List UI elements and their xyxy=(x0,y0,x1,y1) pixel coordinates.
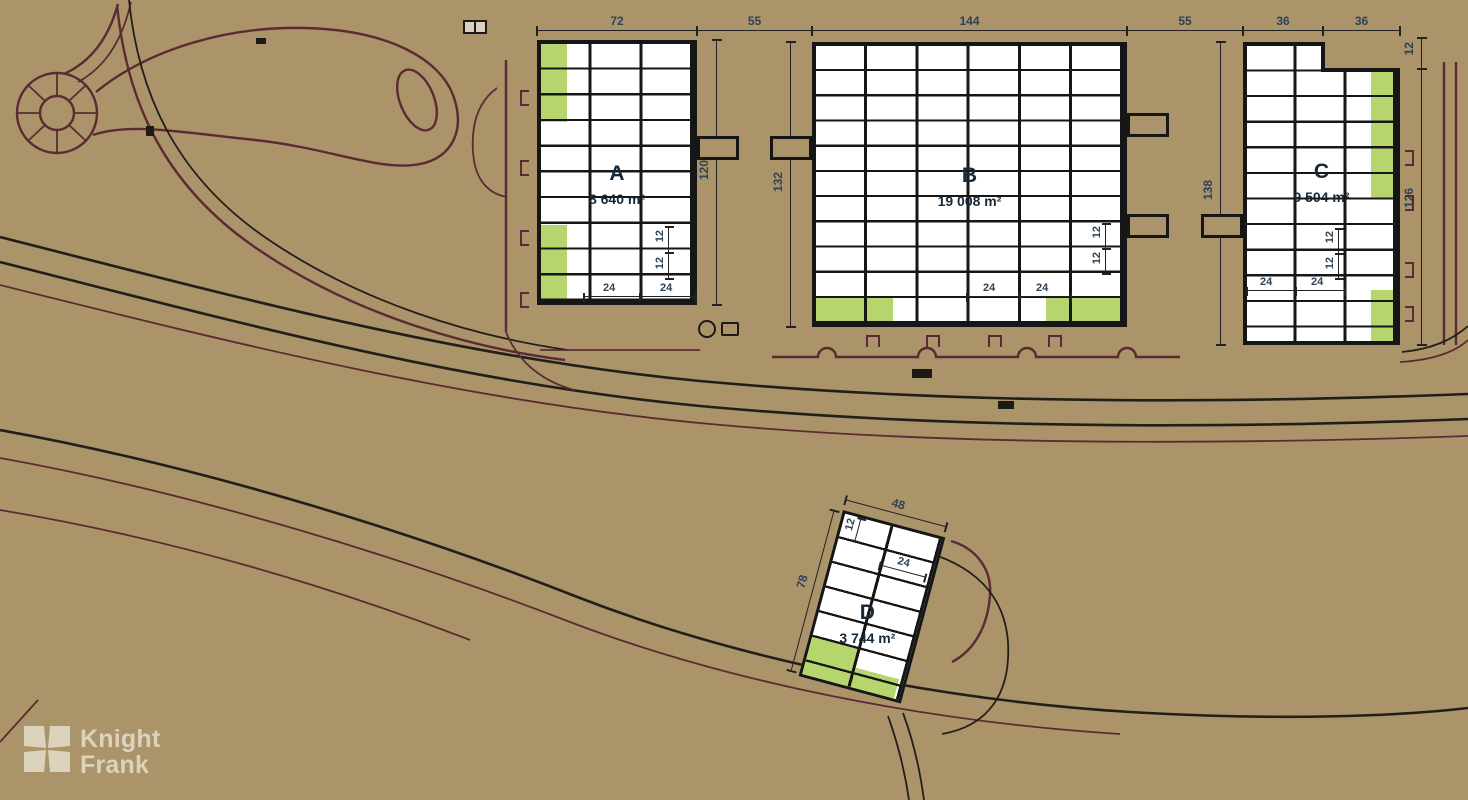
knight-frank-logo: Knight Frank xyxy=(24,726,160,778)
building-b: B 19 008 m² xyxy=(812,42,1127,327)
dim-d-bay-width: 12 xyxy=(854,518,861,542)
dim-top-c-bay2: 36 xyxy=(1323,30,1400,31)
available-unit xyxy=(541,44,567,122)
dim-top-c-bay1: 36 xyxy=(1243,30,1323,31)
building-c: C 9 504 m² xyxy=(1243,42,1400,345)
dim-c-notch: 12 xyxy=(1402,42,1416,55)
knight-frank-wordmark: Knight Frank xyxy=(80,726,160,778)
building-a-area: 8 640 m² xyxy=(541,191,693,207)
dock-door-icon xyxy=(1405,262,1414,278)
building-b-area: 19 008 m² xyxy=(816,193,1123,209)
roundabout xyxy=(17,73,97,153)
dock-tab xyxy=(1127,214,1169,238)
dim-b-bay-depths: 24 24 xyxy=(966,296,1072,297)
dock-door-icon xyxy=(520,160,529,176)
dock-door-icon xyxy=(520,90,529,106)
dock-tab xyxy=(1127,113,1169,137)
dim-a-bay-depths: 24 24 xyxy=(583,296,697,297)
dock-door-icon xyxy=(1405,306,1414,322)
dim-c-depth-right: 12 126 xyxy=(1421,38,1422,345)
dock-tab xyxy=(1201,214,1243,238)
dock-tab xyxy=(697,136,739,160)
dim-a-bay-widths: 12 12 xyxy=(668,226,669,280)
road-marker xyxy=(256,38,266,44)
building-d-label: D 3 744 m² xyxy=(817,601,917,646)
dock-door-icon xyxy=(926,335,940,347)
dock-door-icon xyxy=(1405,195,1414,211)
dim-top-b-width: 144 xyxy=(812,30,1127,31)
building-a: A 8 640 m² xyxy=(537,40,697,305)
dim-d-bay-depth: 24 xyxy=(879,564,927,578)
road-marker xyxy=(998,401,1014,409)
gatehouse-icon xyxy=(463,20,487,34)
available-unit xyxy=(816,298,893,323)
road-marker xyxy=(912,369,932,378)
building-c-notch xyxy=(1321,42,1400,72)
dock-door-icon xyxy=(520,292,529,308)
dim-top-a-width: 72 xyxy=(537,30,697,31)
road-marker xyxy=(146,126,154,136)
dim-top-gap-ab: 55 xyxy=(697,30,812,31)
dock-door-icon xyxy=(988,335,1002,347)
dock-door-icon xyxy=(520,230,529,246)
dim-b-depth: 132 xyxy=(790,42,791,327)
dim-top-gap-bc: 55 xyxy=(1127,30,1243,31)
available-unit xyxy=(1046,298,1123,323)
dock-door-icon xyxy=(1048,335,1062,347)
available-unit xyxy=(541,225,567,301)
available-unit xyxy=(1371,68,1396,198)
dim-c-depth-left: 138 xyxy=(1220,42,1221,345)
dock-door-icon xyxy=(866,335,880,347)
dock-tab xyxy=(770,136,812,160)
dim-c-bay-depths: 24 24 xyxy=(1246,290,1346,291)
knight-frank-mark-icon xyxy=(24,726,70,772)
dim-b-bay-widths: 12 12 xyxy=(1105,223,1106,275)
tank-icon xyxy=(698,320,716,338)
building-b-label: B 19 008 m² xyxy=(816,164,1123,209)
site-plan: 72 55 144 55 36 36 120 132 138 12 126 A … xyxy=(0,0,1468,800)
substation-icon xyxy=(721,322,739,336)
dim-a-depth: 120 xyxy=(716,40,717,305)
dock-door-icon xyxy=(1405,150,1414,166)
building-a-label: A 8 640 m² xyxy=(541,162,693,207)
dim-c-bay-widths: 12 12 xyxy=(1338,228,1339,280)
available-unit xyxy=(1371,290,1396,341)
